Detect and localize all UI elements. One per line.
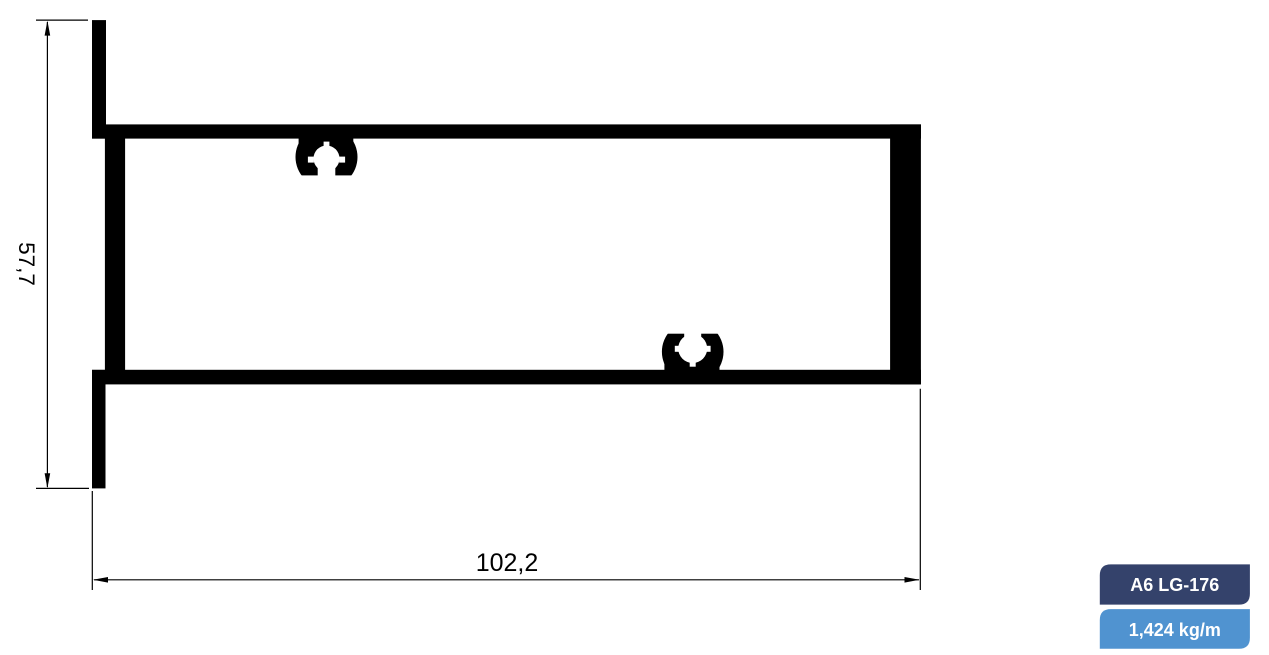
svg-text:57,7: 57,7 — [14, 242, 39, 286]
svg-text:102,2: 102,2 — [476, 549, 539, 577]
svg-text:1,424 kg/m: 1,424 kg/m — [1129, 620, 1221, 640]
svg-text:A6 LG-176: A6 LG-176 — [1130, 575, 1219, 595]
